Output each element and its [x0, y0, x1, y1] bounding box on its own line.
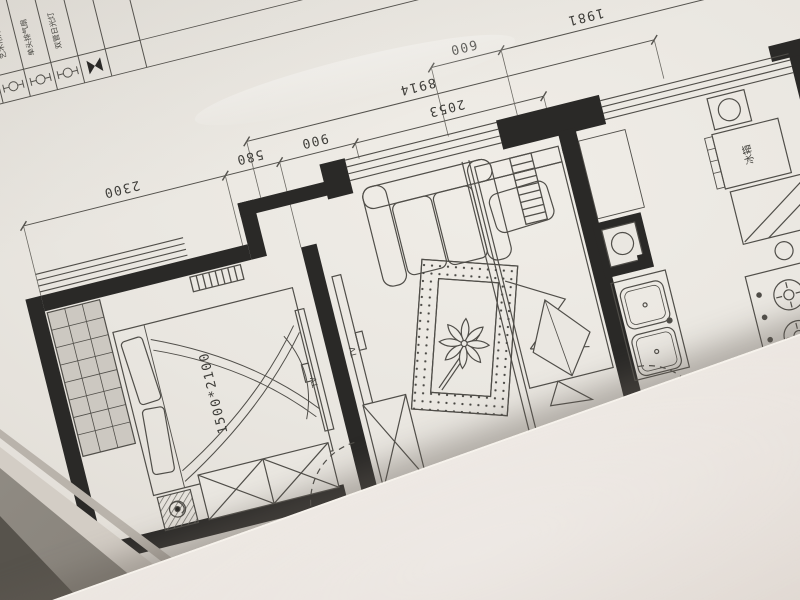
small-appliance	[707, 90, 752, 130]
fridge-label: 冰箱	[740, 143, 757, 166]
wall-kitchen-right	[787, 43, 800, 293]
legend-label-4: 双管日光灯	[45, 11, 64, 50]
dim-1981: 1981	[566, 4, 606, 28]
dim-2053: 2053	[427, 96, 467, 120]
wall-entry-stub-h	[237, 181, 329, 217]
bed-size-label: 1500*2100	[197, 350, 232, 435]
legend-symbol-lamp	[3, 79, 25, 93]
dim-900: 900	[299, 130, 330, 151]
rug	[411, 259, 517, 415]
pillow	[142, 406, 175, 475]
small-round-fixture	[773, 240, 795, 262]
bed2-blanket	[505, 264, 606, 413]
flower-icon	[437, 317, 490, 370]
tv-set-living	[355, 331, 366, 350]
legend-label-3: 单头排气扇	[18, 18, 37, 57]
radiator-bed2	[510, 153, 548, 224]
dim-2300: 2300	[101, 177, 141, 201]
legend-label-2: 艺术吊灯	[0, 28, 8, 60]
legend-symbol-bowtie-icon	[86, 57, 103, 74]
wall-bed2-kitchen	[562, 144, 648, 425]
window-kitchen	[600, 54, 793, 120]
dim-580: 580	[234, 146, 265, 167]
legend-symbol-lamp	[57, 66, 79, 80]
corner-cabinet	[730, 173, 800, 244]
floorplan-photo: 防水防尘灯 半球吸顶灯 艺术吊灯 单头排气扇 双管日光灯	[0, 0, 800, 600]
legend-symbol-lamp	[30, 73, 52, 87]
window-living	[345, 122, 501, 180]
wall-bed2-top	[496, 95, 606, 150]
tv-label-bedroom: TV	[309, 376, 321, 390]
